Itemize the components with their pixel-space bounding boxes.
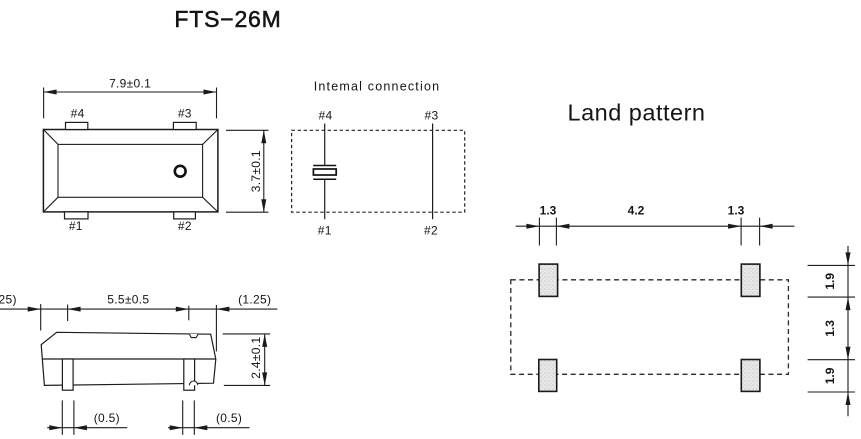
svg-text:(0.5): (0.5) <box>94 411 120 425</box>
svg-text:Intemal connection: Intemal connection <box>314 80 441 94</box>
svg-text:#3: #3 <box>425 109 439 123</box>
svg-text:1.9: 1.9 <box>823 367 837 384</box>
svg-text:#2: #2 <box>424 223 438 237</box>
svg-text:1.9: 1.9 <box>823 273 837 290</box>
svg-text:7.9±0.1: 7.9±0.1 <box>109 76 151 90</box>
svg-text:#4: #4 <box>319 109 333 123</box>
svg-text:Land pattern: Land pattern <box>568 100 706 126</box>
svg-text:(1.25): (1.25) <box>238 292 271 306</box>
svg-text:(1.25): (1.25) <box>0 292 17 306</box>
svg-text:2.4±0.1: 2.4±0.1 <box>249 337 263 379</box>
svg-text:3.7±0.1: 3.7±0.1 <box>249 150 263 192</box>
svg-text:#1: #1 <box>318 223 332 237</box>
svg-text:1.3: 1.3 <box>540 204 557 218</box>
svg-text:1.3: 1.3 <box>823 320 837 337</box>
svg-text:#1: #1 <box>69 219 83 233</box>
svg-text:5.5±0.5: 5.5±0.5 <box>107 292 149 306</box>
svg-text:4.2: 4.2 <box>628 204 645 218</box>
svg-text:#2: #2 <box>178 219 192 233</box>
svg-text:#4: #4 <box>71 107 85 121</box>
svg-text:(0.5): (0.5) <box>216 411 242 425</box>
svg-text:FTS−26M: FTS−26M <box>174 6 281 32</box>
svg-text:#3: #3 <box>178 107 192 121</box>
svg-text:1.3: 1.3 <box>728 204 745 218</box>
